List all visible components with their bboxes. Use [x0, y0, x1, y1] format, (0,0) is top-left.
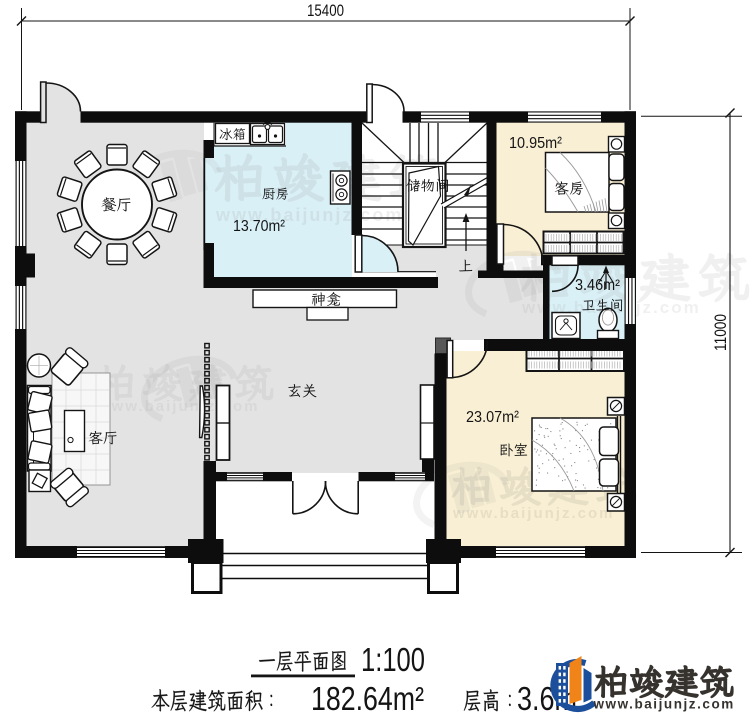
- svg-text:10.95m²: 10.95m²: [509, 135, 563, 152]
- svg-text:11000: 11000: [711, 314, 730, 351]
- svg-text:www.baijunjz.com: www.baijunjz.com: [593, 697, 735, 712]
- svg-text:3.46m²: 3.46m²: [575, 277, 620, 294]
- svg-text:13.70m²: 13.70m²: [233, 218, 286, 235]
- svg-text:15400: 15400: [307, 1, 344, 20]
- svg-text:www.baijunjz.com: www.baijunjz.com: [452, 505, 614, 522]
- svg-text:23.07m²: 23.07m²: [466, 409, 520, 426]
- svg-text:www.baijunjz.com: www.baijunjz.com: [97, 398, 259, 415]
- svg-text:1:100: 1:100: [361, 641, 425, 678]
- svg-text:182.64m²: 182.64m²: [311, 680, 424, 717]
